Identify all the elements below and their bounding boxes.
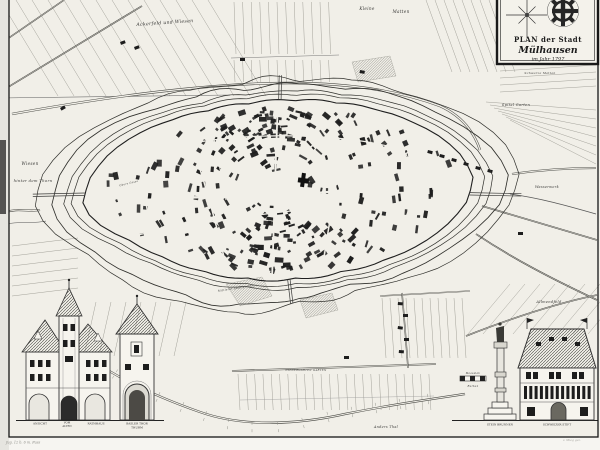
- slit-window: [535, 386, 538, 399]
- slit-window: [545, 386, 548, 399]
- field-strip: [243, 60, 244, 82]
- field-strip: [48, 0, 106, 96]
- road-or-canal-fill: [0, 6, 142, 92]
- field-strip: [246, 374, 248, 410]
- city-block: [238, 109, 247, 116]
- outbuilding: [398, 302, 403, 305]
- roof-dormer: [562, 337, 567, 341]
- map-title-line3: im Jahr 1797: [532, 57, 566, 63]
- map-label: Obere Gasse: [119, 180, 139, 188]
- field-strip: [192, 0, 250, 96]
- city-block: [308, 241, 316, 247]
- gate-tower-caption: THURM: [131, 425, 143, 429]
- outbuilding: [404, 338, 409, 341]
- field-strip: [176, 0, 234, 96]
- city-block: [346, 256, 353, 264]
- city-block: [280, 230, 286, 233]
- outbuilding: [344, 356, 349, 359]
- field-boundary: [240, 396, 434, 400]
- road-or-canal: [12, 83, 480, 150]
- field-strip: [354, 374, 356, 410]
- window: [71, 324, 76, 331]
- city-block: [157, 160, 162, 167]
- field-strip: [573, 284, 600, 334]
- city-block: [293, 241, 296, 243]
- field-strip: [263, 374, 265, 410]
- city-block: [201, 139, 206, 145]
- field-strip: [280, 374, 282, 410]
- map-label: Allmendfeld: [535, 300, 562, 304]
- bank-tick: [399, 399, 400, 402]
- finial-ball: [136, 295, 138, 297]
- map-label: Ackerfeld und Wiesen: [135, 18, 193, 28]
- artist-note: v. Mieg gez.: [563, 438, 581, 442]
- city-block: [347, 234, 356, 243]
- city-block: [197, 186, 200, 192]
- scan-blotch: [0, 140, 6, 214]
- city-block: [195, 208, 198, 214]
- map-label: Spital Garten: [502, 103, 531, 107]
- field-strip: [288, 374, 290, 410]
- city-block: [248, 265, 252, 268]
- map-label: Ruthen: [467, 385, 479, 388]
- field-strip: [500, 79, 596, 85]
- window: [86, 360, 91, 367]
- city-block: [415, 225, 418, 233]
- window: [533, 372, 538, 379]
- flag: [580, 318, 587, 323]
- window: [556, 372, 561, 379]
- city-block: [218, 147, 226, 155]
- roof-dormer: [536, 342, 541, 346]
- city-block: [193, 162, 197, 166]
- field-strip: [304, 374, 306, 410]
- city-block: [165, 171, 169, 178]
- city-block: [301, 229, 305, 234]
- field-strip: [12, 278, 78, 286]
- city-block: [257, 202, 261, 206]
- stream: [6, 221, 46, 224]
- city-block: [210, 166, 214, 172]
- city-block: [258, 128, 264, 133]
- field-strip: [338, 374, 340, 410]
- slit-window: [556, 386, 559, 399]
- bridge: [33, 193, 85, 194]
- field-strip: [490, 105, 596, 119]
- city-block: [188, 249, 193, 253]
- city-block: [281, 125, 288, 127]
- field-strip: [268, 2, 270, 54]
- city-block: [299, 154, 308, 160]
- city-block: [259, 117, 267, 122]
- bank-tick: [180, 409, 181, 412]
- map-label: hinter dem Thorn: [14, 178, 53, 183]
- city-block: [337, 231, 343, 237]
- field-boundary: [231, 55, 339, 58]
- map-label: Maasstab: [465, 372, 481, 375]
- field-strip: [251, 60, 252, 82]
- fountain-caption: STEIN BRUNNEN: [487, 422, 514, 426]
- map-sheet: ANSICHT VOM ALTEN RATHHAUS BASLER THOR T…: [0, 0, 600, 450]
- city-block: [430, 190, 434, 198]
- roof-dormer: [549, 337, 554, 341]
- outbuilding: [398, 326, 403, 330]
- city-block: [202, 199, 207, 208]
- window: [38, 374, 43, 381]
- city-block: [163, 181, 168, 188]
- slit-window: [561, 386, 564, 399]
- field-strip: [382, 298, 386, 358]
- city-block: [269, 110, 273, 115]
- city-block: [228, 144, 235, 151]
- window: [65, 356, 73, 362]
- city-block: [435, 150, 439, 156]
- scale-segment: [480, 376, 485, 381]
- city-block: [256, 144, 262, 150]
- city-block: [398, 193, 401, 201]
- outbuilding: [134, 45, 140, 50]
- bridge: [281, 75, 282, 99]
- garden-hatch: [300, 293, 338, 318]
- city-block: [339, 203, 341, 206]
- field-strip: [313, 374, 315, 410]
- city-block: [348, 154, 353, 160]
- bank-tick: [183, 402, 184, 405]
- field-strip: [429, 374, 431, 410]
- city-block: [177, 157, 184, 166]
- window: [526, 372, 531, 379]
- window: [63, 324, 68, 331]
- city-block: [264, 236, 272, 240]
- city-block: [164, 236, 167, 243]
- city-block: [113, 172, 119, 180]
- bank-tick: [304, 425, 305, 428]
- city-block: [235, 174, 239, 181]
- rathaus-caption: VOM: [63, 421, 71, 425]
- house-door: [551, 403, 566, 421]
- city-block: [234, 150, 238, 154]
- city-block: [231, 156, 237, 162]
- city-block: [392, 224, 397, 231]
- road-or-canal: [512, 168, 596, 174]
- map-label: Wiesen: [21, 161, 38, 166]
- city-block: [287, 106, 294, 112]
- plate-note: Jug. 12 b. 6 m. Fuss: [5, 441, 40, 445]
- field-strip: [243, 2, 245, 54]
- city-block: [246, 234, 253, 241]
- city-block: [148, 193, 152, 199]
- window: [125, 364, 131, 370]
- city-block: [338, 130, 344, 136]
- field-strip: [16, 0, 74, 96]
- arcade-arch: [29, 394, 49, 420]
- rathaus-caption: ALTEN: [61, 424, 72, 428]
- city-block: [245, 227, 251, 233]
- window: [549, 372, 554, 379]
- scale-segment: [460, 376, 465, 381]
- rathaus-caption: RATHHAUS: [87, 422, 104, 426]
- field-strip: [404, 374, 406, 410]
- city-block: [275, 257, 284, 263]
- city-block: [221, 214, 226, 220]
- bank-tick: [328, 419, 329, 422]
- field-strip: [268, 60, 269, 82]
- city-block: [240, 249, 244, 253]
- window: [580, 407, 588, 416]
- map-label: NIEDERGARTEN GARTEN: [284, 368, 327, 372]
- window: [30, 360, 35, 367]
- city-block: [333, 251, 341, 258]
- road-or-canal-fill: [476, 234, 597, 300]
- field-strip: [321, 374, 323, 410]
- city-block: [248, 137, 255, 143]
- city-block: [287, 238, 292, 242]
- city-block: [352, 153, 356, 157]
- city-block: [296, 232, 301, 236]
- field-strip: [260, 2, 262, 54]
- field-strip: [446, 298, 450, 358]
- city-block: [289, 114, 298, 120]
- field-strip: [390, 298, 394, 358]
- bank-tick: [400, 406, 401, 409]
- city-block: [339, 228, 343, 232]
- city-block: [342, 239, 346, 243]
- historic-city-map: ANSICHT VOM ALTEN RATHHAUS BASLER THOR T…: [0, 0, 600, 450]
- city-block: [399, 129, 405, 134]
- bank-tick: [327, 412, 328, 415]
- window: [46, 374, 51, 381]
- city-block: [200, 127, 206, 132]
- fountain-step: [488, 408, 512, 414]
- field-strip: [160, 0, 218, 96]
- house-vignette: SCHWEIZER STIFT: [518, 318, 596, 426]
- field-strip: [296, 374, 298, 410]
- field-strip: [320, 60, 321, 82]
- city-block: [223, 198, 229, 206]
- roof-dormer: [575, 342, 580, 346]
- city-block: [262, 123, 268, 128]
- window: [579, 372, 584, 379]
- outbuilding: [240, 58, 245, 61]
- field-strip: [510, 120, 596, 164]
- city-block: [402, 140, 409, 147]
- outbuilding: [427, 150, 433, 154]
- slit-window: [524, 386, 527, 399]
- house-caption: SCHWEIZER STIFT: [543, 422, 571, 426]
- flag: [527, 318, 534, 323]
- field-strip: [208, 0, 266, 96]
- field-strip: [294, 60, 295, 82]
- city-block: [445, 159, 452, 168]
- city-block: [341, 213, 346, 219]
- city-block: [319, 130, 325, 137]
- outbuilding: [439, 154, 445, 158]
- city-block: [353, 120, 357, 126]
- city-block: [369, 220, 373, 227]
- city-block: [211, 150, 216, 156]
- road-or-canal-fill: [402, 293, 408, 368]
- city-block: [283, 234, 289, 238]
- field-strip: [260, 60, 261, 82]
- city-block: [375, 130, 380, 136]
- city-block: [319, 232, 325, 238]
- slit-window: [566, 386, 569, 399]
- city-block: [311, 225, 320, 234]
- road-or-canal: [476, 234, 597, 300]
- field-strip: [379, 374, 381, 410]
- city-block: [423, 210, 428, 218]
- field-strip: [294, 2, 296, 54]
- city-block: [334, 112, 338, 116]
- city-block: [118, 212, 122, 216]
- city-block: [295, 110, 302, 113]
- city-block: [308, 160, 313, 165]
- city-block: [175, 165, 180, 172]
- field-strip: [421, 374, 423, 410]
- field-strip: [311, 2, 313, 54]
- window: [94, 374, 99, 381]
- city-block: [327, 261, 335, 269]
- city-block: [215, 127, 219, 131]
- rathaus-caption: ANSICHT: [32, 422, 47, 426]
- slit-window: [588, 386, 591, 399]
- field-strip: [346, 374, 348, 410]
- field-strip: [277, 60, 278, 82]
- field-strip: [311, 60, 312, 82]
- city-block: [188, 183, 193, 192]
- finial-ball: [68, 279, 70, 281]
- gate-opening: [129, 390, 145, 420]
- city-block: [287, 250, 291, 253]
- window: [102, 374, 107, 381]
- field-strip: [506, 117, 596, 155]
- field-strip: [329, 2, 331, 54]
- city-block: [315, 148, 322, 155]
- city-block: [394, 173, 399, 181]
- city-block: [324, 129, 329, 134]
- city-block: [295, 143, 301, 147]
- city-block: [278, 128, 282, 132]
- window: [102, 360, 107, 367]
- slit-window: [582, 386, 585, 399]
- city-block: [397, 162, 401, 169]
- field-strip: [159, 302, 171, 356]
- field-strip: [32, 0, 90, 96]
- field-strip: [414, 298, 418, 358]
- field-strip: [12, 268, 78, 276]
- fountain-statue: [496, 326, 504, 342]
- slit-window: [529, 386, 532, 399]
- field-strip: [12, 238, 78, 246]
- field-strip: [12, 248, 78, 256]
- bridge: [33, 195, 85, 196]
- window: [38, 360, 43, 367]
- city-block: [308, 122, 316, 129]
- city-block: [262, 106, 267, 112]
- field-strip: [286, 2, 288, 54]
- city-block: [278, 247, 281, 251]
- window: [143, 364, 149, 370]
- city-block: [283, 262, 291, 267]
- outbuilding: [451, 158, 457, 162]
- field-strip: [277, 2, 279, 54]
- map-title-line2: Mülhausen: [517, 45, 577, 56]
- field-strip: [371, 374, 373, 410]
- field-strip: [462, 298, 466, 358]
- window: [63, 340, 68, 347]
- city-block: [185, 233, 189, 236]
- bridge: [470, 195, 522, 196]
- city-block: [229, 172, 234, 177]
- gate-tower-vignette: BASLER THOR THURM: [116, 295, 158, 430]
- city-block: [237, 156, 244, 162]
- field-strip: [303, 2, 305, 54]
- field-strip: [286, 60, 287, 82]
- city-block: [351, 227, 359, 235]
- window: [572, 372, 577, 379]
- window: [94, 360, 99, 367]
- city-block: [417, 215, 420, 218]
- field-strip: [303, 60, 304, 82]
- city-block: [228, 124, 236, 132]
- city-block: [331, 240, 337, 245]
- stream: [510, 194, 596, 214]
- bank-tick: [112, 376, 114, 379]
- fountain-step: [484, 414, 516, 420]
- city-block: [392, 195, 396, 203]
- field-strip: [112, 0, 170, 96]
- city-block: [204, 253, 210, 260]
- city-block: [299, 264, 303, 269]
- field-strip: [412, 374, 414, 410]
- city-block: [311, 235, 314, 238]
- city-block: [218, 221, 225, 229]
- city-block: [286, 118, 290, 121]
- field-strip: [174, 302, 186, 356]
- window: [134, 345, 139, 353]
- slit-window: [551, 386, 554, 399]
- bank-tick: [156, 399, 157, 402]
- city-block: [282, 145, 286, 150]
- city-block: [107, 180, 110, 186]
- outbuilding: [399, 350, 404, 353]
- bridge: [290, 279, 293, 303]
- map-label: Anders Thal: [373, 425, 398, 429]
- field-strip: [251, 2, 253, 54]
- city-block: [247, 259, 254, 265]
- house-roof: [518, 329, 596, 368]
- city-block: [358, 164, 363, 168]
- map-title-line1: PLAN der Stadt: [514, 35, 582, 44]
- city-block: [265, 113, 269, 117]
- city-block: [264, 163, 271, 169]
- window: [527, 407, 535, 416]
- city-block: [182, 217, 187, 223]
- field-strip: [255, 374, 257, 410]
- road-or-canal-fill: [232, 364, 436, 371]
- fountain-basin: [492, 402, 508, 408]
- slit-window: [572, 386, 575, 399]
- city-block: [162, 211, 165, 215]
- statue-head: [498, 322, 501, 325]
- city-block: [270, 147, 275, 152]
- outbuilding: [518, 232, 523, 235]
- field-strip: [271, 374, 273, 410]
- window: [71, 340, 76, 347]
- city-block: [137, 204, 141, 212]
- bridge: [288, 280, 291, 304]
- field-strip: [320, 2, 322, 54]
